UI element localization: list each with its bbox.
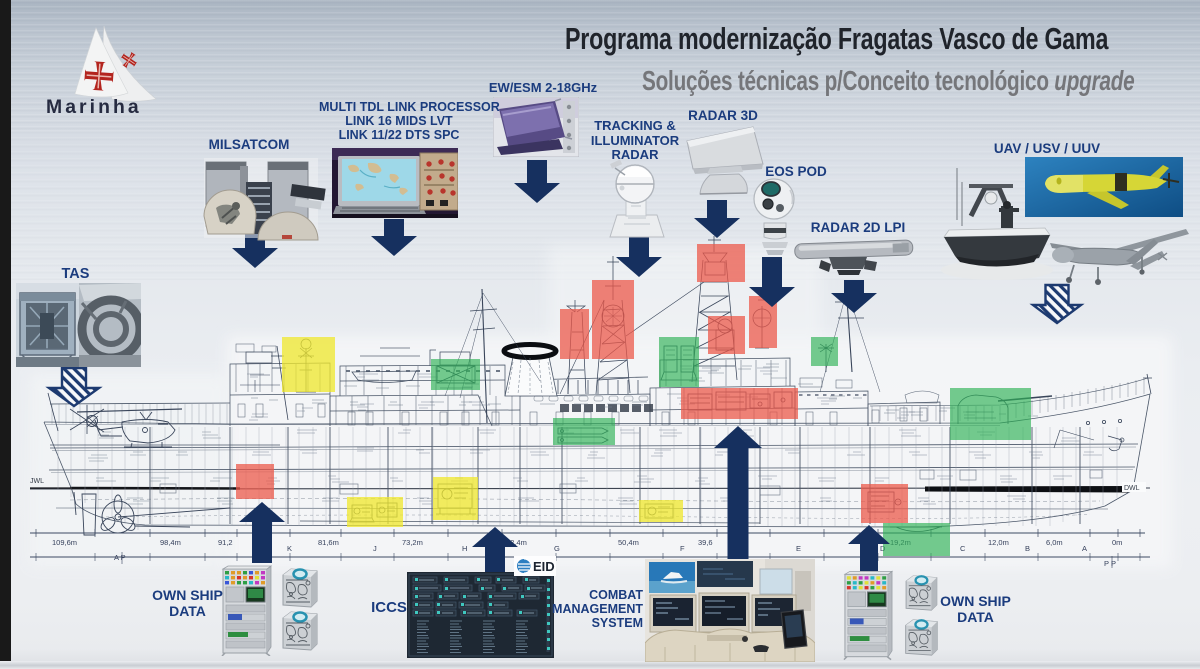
svg-text:G: G (554, 544, 560, 553)
svg-text:73,2m: 73,2m (402, 538, 423, 547)
svg-text:B: B (1025, 544, 1030, 553)
svg-text:H: H (462, 544, 467, 553)
svg-text:39,6: 39,6 (698, 538, 713, 547)
svg-text:P P: P P (1104, 559, 1116, 568)
svg-text:A: A (1082, 544, 1087, 553)
svg-text:6,0m: 6,0m (1046, 538, 1063, 547)
svg-text:DWL: DWL (1124, 485, 1140, 492)
svg-text:98,4m: 98,4m (160, 538, 181, 547)
svg-text:C: C (960, 544, 966, 553)
svg-text:0m: 0m (1112, 538, 1122, 547)
svg-text:K: K (287, 544, 292, 553)
svg-text:81,6m: 81,6m (318, 538, 339, 547)
svg-text:109,6m: 109,6m (52, 538, 77, 547)
svg-text:50,4m: 50,4m (618, 538, 639, 547)
svg-text:J: J (373, 544, 377, 553)
svg-text:E: E (796, 544, 801, 553)
svg-text:EID: EID (533, 559, 555, 574)
svg-text:A P: A P (114, 553, 126, 562)
svg-text:JWL: JWL (30, 478, 44, 485)
svg-text:F: F (680, 544, 685, 553)
svg-text:12,0m: 12,0m (988, 538, 1009, 547)
svg-text:91,2: 91,2 (218, 538, 233, 547)
